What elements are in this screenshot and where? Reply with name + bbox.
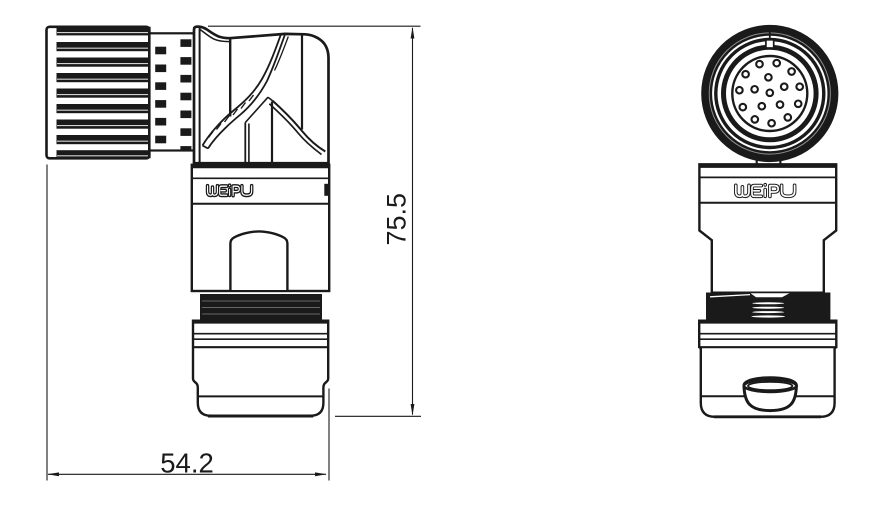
svg-text:54.2: 54.2 xyxy=(160,448,214,479)
svg-text:75.5: 75.5 xyxy=(382,193,412,246)
